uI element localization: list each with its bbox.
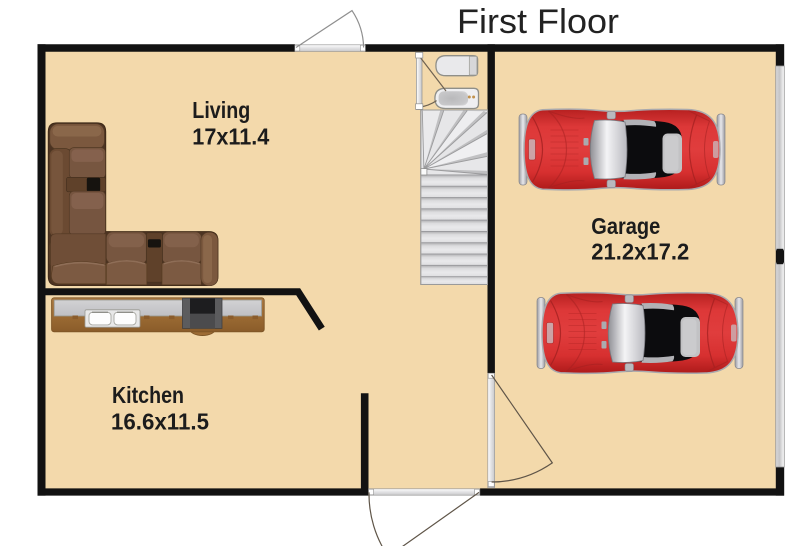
svg-text:16.6x11.5: 16.6x11.5 — [111, 409, 209, 435]
svg-text:17x11.4: 17x11.4 — [192, 123, 269, 149]
svg-text:Kitchen: Kitchen — [112, 382, 184, 408]
svg-text:21.2x17.2: 21.2x17.2 — [591, 239, 689, 265]
svg-text:First Floor: First Floor — [457, 3, 619, 41]
svg-text:Living: Living — [192, 97, 250, 123]
svg-text:Garage: Garage — [591, 213, 660, 239]
